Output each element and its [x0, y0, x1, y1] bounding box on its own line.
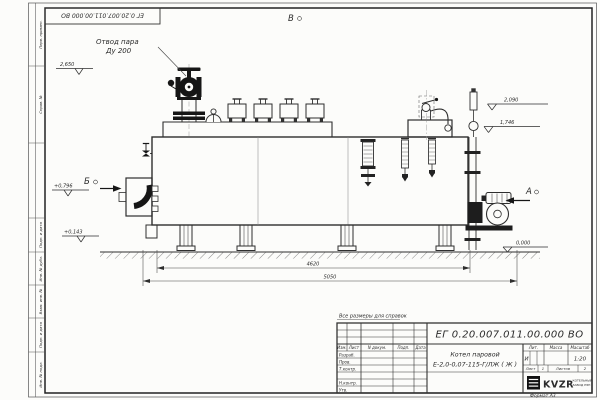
- tb-header-list: Лист: [348, 345, 360, 350]
- margin-label: Перв. примен.: [38, 20, 43, 49]
- view-label-top: В: [288, 14, 301, 24]
- tb-header-izm: Изм.: [337, 345, 346, 350]
- top-doc-number: ЕГ 0.20.007.011.00.000 ВО: [61, 11, 144, 18]
- tb-row-razrab: Разраб.: [339, 352, 355, 357]
- burner: [119, 178, 158, 216]
- dim-overall-label: 5050: [324, 275, 337, 281]
- gauge-glass-1: [401, 139, 409, 182]
- level-indicator: [361, 139, 376, 187]
- tb-row-utv: Утв.: [339, 387, 347, 392]
- view-arrow-left: Б: [84, 177, 122, 192]
- tb-sheets-label: Листов: [555, 366, 571, 371]
- elev-low-label: +0,143: [64, 230, 83, 236]
- ground-line: [100, 252, 540, 259]
- margin-label: Инв. № дубл.: [38, 256, 43, 282]
- steam-outlet-callout: Отвод пара Ду 200: [96, 38, 186, 76]
- elev-burner-label: +0,796: [54, 184, 73, 190]
- elev-steam-label: 2,650: [60, 62, 74, 68]
- logo-caption-1: КОТЕЛЬНЫЙ: [573, 378, 593, 383]
- view-left-label: Б: [84, 177, 90, 187]
- margin-label: Взам. инв. №: [38, 289, 43, 315]
- tb-header-podp: Подп.: [397, 345, 409, 350]
- tb-sheets-value: 2: [584, 366, 587, 371]
- tb-product-name-2: Е-2,0-0,07-115-Г/ЛЖ ( Ж ): [433, 362, 517, 369]
- drawing-sheet: Перв. примен. Справ. № Подп. и дата Инв.…: [0, 0, 600, 400]
- manufacturer-logo: KVZR КОТЕЛЬНЫЙ ЗАВОД РЭП: [527, 376, 592, 391]
- dome-fitting: [206, 109, 221, 122]
- tb-sheet-value: 1: [542, 366, 544, 371]
- tb-doc-number: ЕГ 0.20.007.011.00.000 ВО: [436, 330, 584, 341]
- margin-label: Инв. № подл.: [38, 361, 43, 387]
- elev-ground-label: 0,000: [516, 241, 530, 247]
- elev-right-top-label: 2,090: [504, 98, 518, 104]
- elev-right-mid-label: 1,746: [500, 120, 514, 126]
- margin-label: Подп. и дата: [38, 221, 43, 248]
- tb-row-prov: Пров.: [339, 359, 351, 364]
- tb-product-name-1: Котел паровой: [450, 352, 499, 359]
- pump-unit: [466, 193, 513, 231]
- reference-note: Все размеры для справок: [339, 314, 407, 320]
- right-pipe: [465, 137, 481, 250]
- top-hatches: [228, 99, 324, 122]
- tb-row-tkontr: Т.контр.: [339, 366, 356, 371]
- dim-inner-label: 4620: [307, 262, 320, 268]
- tb-header-data: Дата: [414, 345, 426, 350]
- wall-valve: [142, 144, 152, 157]
- steam-outlet-line1: Отвод пара: [96, 38, 139, 46]
- top-doc-stamp: ЕГ 0.20.007.011.00.000 ВО: [45, 8, 160, 24]
- view-right-label: А: [525, 187, 532, 197]
- support-legs: [146, 225, 454, 251]
- steam-outlet-line2: Ду 200: [105, 47, 132, 55]
- gauge-glass-2: [428, 139, 436, 178]
- boiler-drawing-svg: Перв. примен. Справ. № Подп. и дата Инв.…: [0, 0, 600, 400]
- steam-valve-assembly: [168, 64, 205, 136]
- tb-scale-header: Масштаб: [570, 345, 590, 350]
- tb-lit-value: И: [524, 357, 528, 363]
- tb-lit-header: Лит.: [528, 345, 538, 350]
- tb-sheet-label: Лист: [525, 366, 536, 371]
- logo-text: KVZR: [543, 380, 574, 391]
- tb-scale-value: 1:20: [574, 357, 587, 363]
- rear-drum-fittings: [408, 88, 478, 140]
- margin-label: Подп. и дата: [38, 321, 43, 348]
- margin-label: Справ. №: [38, 95, 43, 114]
- margin-labels: Перв. примен. Справ. № Подп. и дата Инв.…: [38, 20, 43, 387]
- tb-row-nkontr: Н.контр.: [339, 380, 357, 385]
- logo-caption-2: ЗАВОД РЭП: [573, 383, 591, 387]
- tb-mass-header: Масса: [550, 345, 563, 350]
- format-note: Формат А3: [530, 393, 556, 399]
- view-top-label: В: [288, 14, 294, 24]
- tb-header-ndoc: N докум.: [368, 345, 387, 350]
